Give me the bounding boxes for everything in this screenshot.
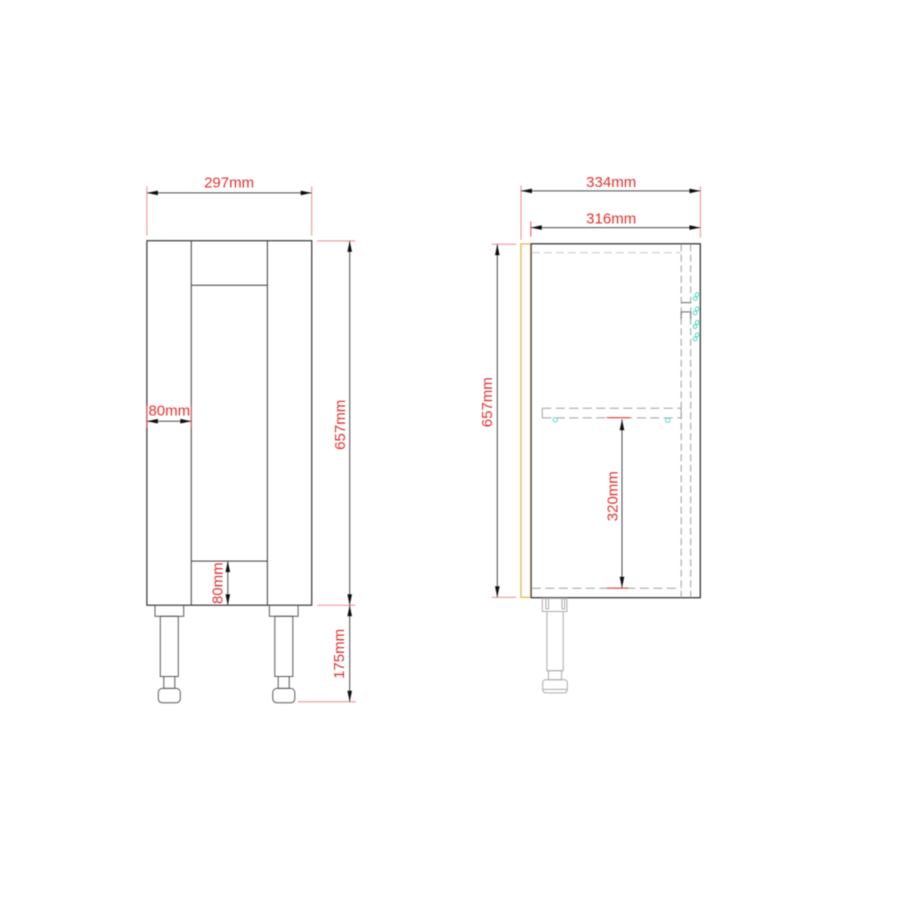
svg-text:657mm: 657mm xyxy=(332,400,349,450)
svg-text:316mm: 316mm xyxy=(586,210,636,227)
svg-text:175mm: 175mm xyxy=(331,629,348,679)
svg-text:80mm: 80mm xyxy=(210,562,227,604)
svg-text:320mm: 320mm xyxy=(604,471,621,521)
svg-text:80mm: 80mm xyxy=(148,403,190,420)
svg-text:657mm: 657mm xyxy=(479,377,496,427)
svg-text:334mm: 334mm xyxy=(586,174,636,191)
svg-text:297mm: 297mm xyxy=(204,175,254,192)
